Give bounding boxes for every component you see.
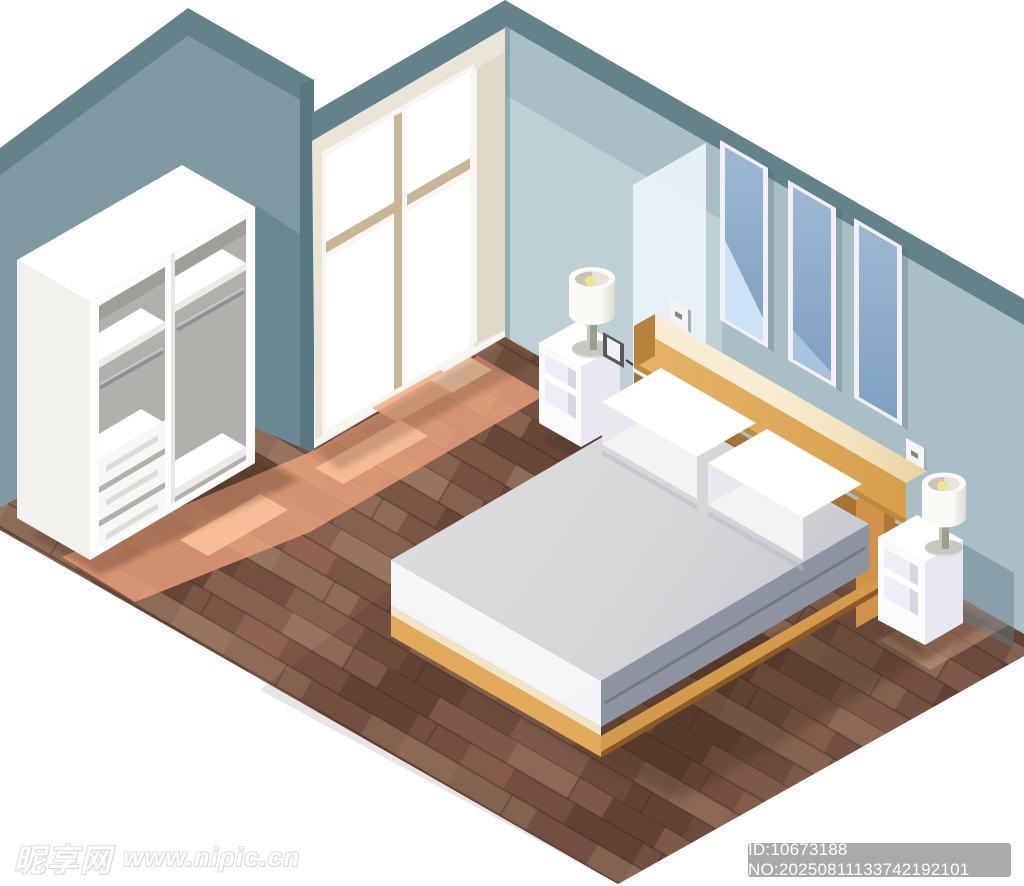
frame-shadow xyxy=(836,208,842,393)
frame-shadow xyxy=(768,168,774,353)
wardrobe-left-side xyxy=(17,260,90,560)
frame-shadow xyxy=(902,246,908,431)
switch-plate-shadow xyxy=(924,448,927,472)
frame-glass xyxy=(859,225,897,419)
wall-corner-shade xyxy=(505,26,510,348)
stock-image-preview: 昵享网 www.nipic.cn ID:10673188 NO:20250811… xyxy=(0,0,1024,886)
id-badge-text: ID:10673188 NO:20250811133742192101 xyxy=(748,840,1011,880)
window-mullion xyxy=(394,112,402,390)
window-mullion-highlight xyxy=(402,110,407,386)
window-jamb-edge xyxy=(470,68,477,346)
wardrobe-wall-shadow xyxy=(256,205,302,464)
picture-frame-2 xyxy=(788,180,842,393)
pillar-side-edge xyxy=(300,79,314,456)
isometric-bedroom-illustration xyxy=(0,0,1024,886)
switch-plate-shadow xyxy=(688,309,691,333)
lamp-bulb xyxy=(585,276,595,286)
id-badge: ID:10673188 NO:20250811133742192101 xyxy=(748,843,1011,877)
picture-frame-1 xyxy=(720,140,774,353)
table-lamp-right xyxy=(922,473,966,557)
picture-frame-3 xyxy=(854,218,908,431)
lamp-bulb xyxy=(937,481,947,491)
